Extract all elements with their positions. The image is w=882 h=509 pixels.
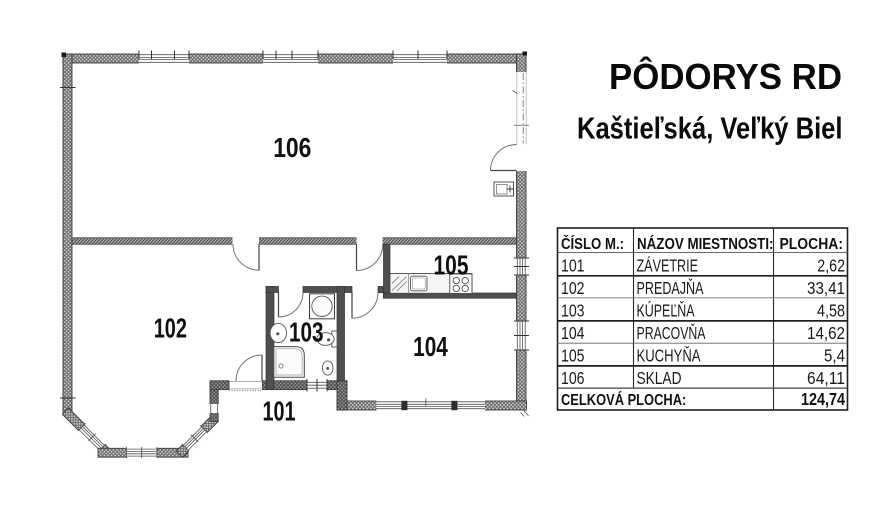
- svg-text:PÔDORYS RD: PÔDORYS RD: [609, 55, 842, 97]
- svg-text:KÚPEĽŇA: KÚPEĽŇA: [637, 301, 695, 321]
- svg-text:4,58: 4,58: [817, 301, 845, 321]
- svg-text:106: 106: [561, 368, 585, 388]
- svg-text:ČÍSLO M.:: ČÍSLO M.:: [561, 234, 624, 253]
- svg-text:64,11: 64,11: [807, 368, 845, 388]
- svg-text:106: 106: [273, 132, 311, 163]
- svg-text:KUCHYŇA: KUCHYŇA: [637, 346, 701, 366]
- svg-text:NÁZOV MIESTNOSTI:: NÁZOV MIESTNOSTI:: [637, 234, 774, 253]
- svg-text:ZÁVETRIE: ZÁVETRIE: [637, 256, 699, 276]
- svg-text:104: 104: [561, 323, 585, 343]
- svg-text:101: 101: [561, 256, 585, 276]
- svg-text:2,62: 2,62: [817, 256, 845, 276]
- svg-text:103: 103: [289, 316, 324, 347]
- svg-text:PREDAJŇA: PREDAJŇA: [637, 278, 704, 298]
- svg-text:102: 102: [561, 278, 585, 298]
- svg-text:33,41: 33,41: [807, 278, 845, 298]
- svg-text:SKLAD: SKLAD: [637, 368, 682, 388]
- svg-text:PLOCHA:: PLOCHA:: [780, 236, 844, 253]
- svg-text:Kaštieľská, Veľký Biel: Kaštieľská, Veľký Biel: [577, 111, 843, 146]
- svg-text:103: 103: [561, 301, 585, 321]
- svg-text:101: 101: [263, 395, 296, 426]
- svg-text:105: 105: [561, 346, 585, 366]
- svg-text:124,74: 124,74: [801, 389, 845, 409]
- svg-text:105: 105: [434, 250, 469, 281]
- svg-text:102: 102: [154, 312, 187, 343]
- svg-text:14,62: 14,62: [807, 323, 845, 343]
- svg-text:CELKOVÁ PLOCHA:: CELKOVÁ PLOCHA:: [561, 390, 686, 409]
- svg-text:PRACOVŇA: PRACOVŇA: [637, 323, 706, 343]
- svg-text:5,4: 5,4: [824, 346, 845, 366]
- svg-text:104: 104: [413, 331, 448, 362]
